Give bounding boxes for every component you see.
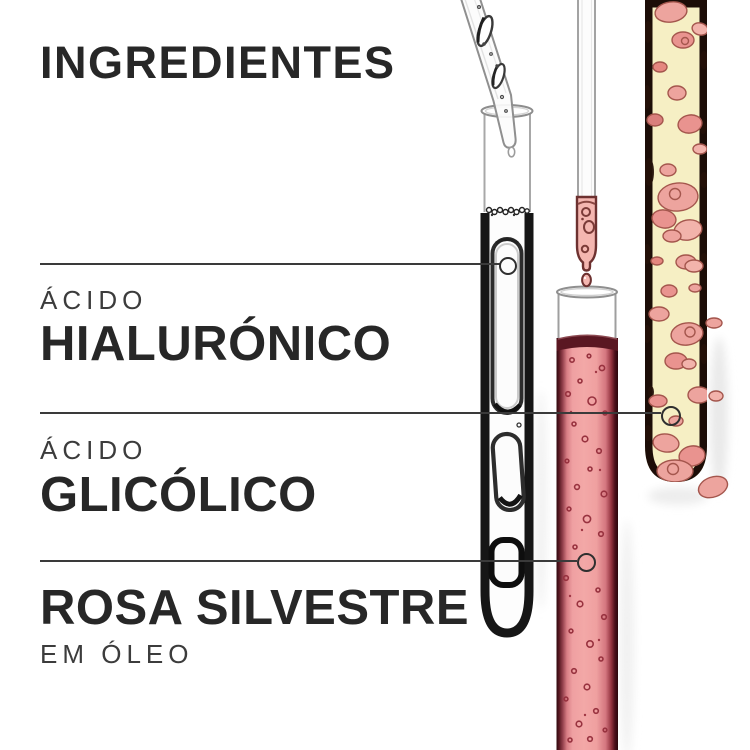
callout-ring-marker-icon: [661, 406, 681, 426]
ingredient-prefix: ÁCIDO: [40, 287, 391, 313]
ingredient-label-hyaluronic: ÁCIDO HIALURÓNICO: [40, 287, 391, 369]
ingredients-infographic: INGREDIENTES ÁCIDO HIALURÓNICO ÁCIDO GLI…: [0, 0, 750, 750]
pipette-dropper-icon: [457, 0, 516, 157]
test-tube-clear-gel-icon: [482, 105, 548, 633]
callout-ring-marker-icon: [499, 257, 517, 275]
pipette-pink-drop-icon: [577, 0, 596, 286]
callout-line-rosehip: [40, 560, 577, 562]
ingredient-prefix: ÁCIDO: [40, 437, 317, 463]
ingredient-name: ROSA SILVESTRE: [40, 584, 469, 633]
test-tube-pink-liquid-icon: [557, 287, 635, 750]
ingredient-name: HIALURÓNICO: [40, 320, 391, 369]
ingredient-label-rosehip: ROSA SILVESTRE EM ÓLEO: [40, 584, 469, 667]
ingredient-label-glycolic: ÁCIDO GLICÓLICO: [40, 437, 317, 520]
page-title: INGREDIENTES: [40, 40, 396, 85]
callout-ring-marker-icon: [577, 553, 596, 572]
test-tube-yellow-oil-icon: [643, 0, 731, 505]
callout-line-hyaluronic: [40, 263, 500, 265]
ingredient-name: GLICÓLICO: [40, 471, 317, 520]
ingredient-suffix: EM ÓLEO: [40, 641, 469, 667]
callout-line-glycolic: [40, 412, 661, 414]
